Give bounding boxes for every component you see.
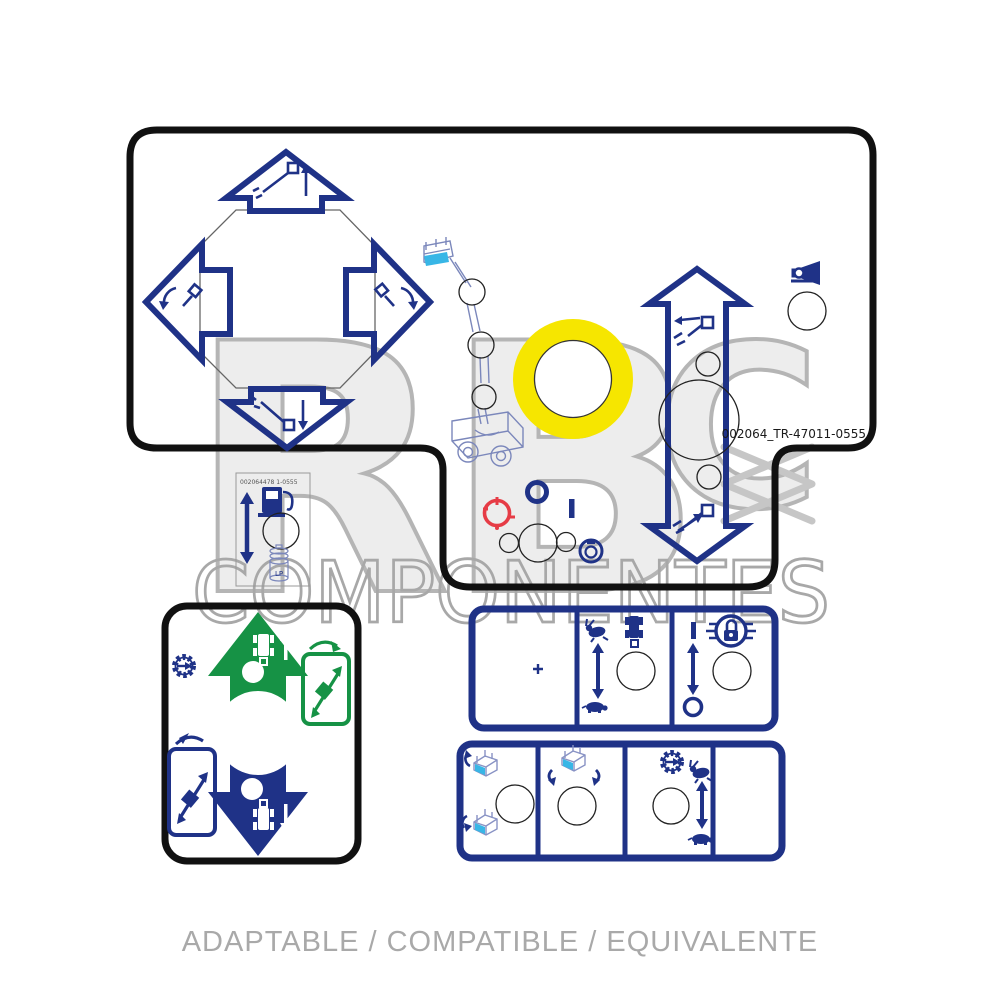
rabbit-fast-icon bbox=[586, 619, 608, 642]
strip1-knob-hole-1 bbox=[617, 652, 655, 690]
telescope-retract-glyph-icon bbox=[674, 316, 713, 345]
rabbit-fast-icon-2 bbox=[690, 760, 712, 783]
switch-hole-circles bbox=[500, 524, 576, 562]
strip2-outline bbox=[460, 744, 782, 858]
main-panel-decal: 002064_TR-47011-0555 bbox=[130, 130, 873, 587]
fuel-up-down-arrow bbox=[240, 492, 254, 564]
articulated-boom-lift-drawing bbox=[424, 237, 523, 466]
gear-select-icon bbox=[175, 657, 193, 675]
plus-mark bbox=[533, 664, 543, 674]
key-switch-icon bbox=[580, 539, 602, 562]
lp-label: LP bbox=[275, 570, 283, 578]
horn-icon bbox=[791, 261, 820, 285]
swing-right-glyph-icon bbox=[375, 284, 418, 310]
caption-adaptable-compatible-equivalente: ADAPTABLE / COMPATIBLE / EQUIVALENTE bbox=[0, 926, 1000, 959]
power-on-i-symbol bbox=[569, 499, 575, 518]
strip-decal-1 bbox=[472, 609, 775, 728]
platform-side-view-green-outline bbox=[303, 641, 349, 724]
platform-side-view-blue-outline bbox=[169, 733, 215, 835]
strip1-knob-hole-2 bbox=[713, 652, 751, 690]
arrow-up-boom-raise bbox=[226, 152, 346, 211]
emergency-red-selector-icon bbox=[483, 497, 515, 530]
strip2-knob-hole-3 bbox=[653, 788, 689, 824]
machine-top-view-icon bbox=[625, 616, 643, 647]
strip2-knob-hole-2 bbox=[558, 787, 596, 825]
horn-button-hole-circle bbox=[788, 292, 826, 330]
speed-double-arrow-2 bbox=[687, 643, 699, 695]
power-o-symbol bbox=[685, 699, 702, 716]
power-off-o-symbol bbox=[528, 483, 547, 502]
fuel-decal-part-number: 002064478 1-0555 bbox=[240, 479, 298, 486]
yellow-ring-pad bbox=[513, 319, 633, 439]
main-decal-part-number: 002064_TR-47011-0555 bbox=[722, 427, 866, 441]
turtle-slow-icon bbox=[582, 702, 608, 713]
gear-select-icon-2 bbox=[663, 753, 681, 771]
fuel-decal: 002064478 1-0555 LP bbox=[236, 473, 310, 586]
boom-knob-hole-circles bbox=[459, 279, 496, 409]
strip-decal-2 bbox=[460, 744, 782, 858]
platform-level-down-icon bbox=[462, 809, 497, 835]
platform-rotate-icon bbox=[548, 745, 600, 786]
decal-artwork: 002064_TR-47011-0555 002064478 1-0555 bbox=[0, 0, 1000, 1000]
strip2-knob-hole-1 bbox=[496, 785, 534, 823]
arrow-down-boom-lower bbox=[227, 389, 347, 448]
power-i-symbol bbox=[691, 622, 696, 639]
platform-level-up-icon bbox=[464, 750, 497, 776]
swing-left-glyph-icon bbox=[159, 284, 201, 310]
axle-lock-padlock-icon bbox=[706, 616, 756, 646]
turtle-slow-icon-2 bbox=[688, 834, 714, 845]
fuel-pump-icon bbox=[258, 487, 292, 517]
drive-decal bbox=[165, 606, 358, 861]
strip1-outline bbox=[472, 609, 775, 728]
fuel-knob-hole-circle bbox=[263, 513, 299, 549]
telescope-extend-glyph-icon bbox=[673, 505, 713, 533]
speed-double-arrow-1 bbox=[592, 643, 604, 699]
speed-double-arrow-3 bbox=[696, 781, 708, 829]
